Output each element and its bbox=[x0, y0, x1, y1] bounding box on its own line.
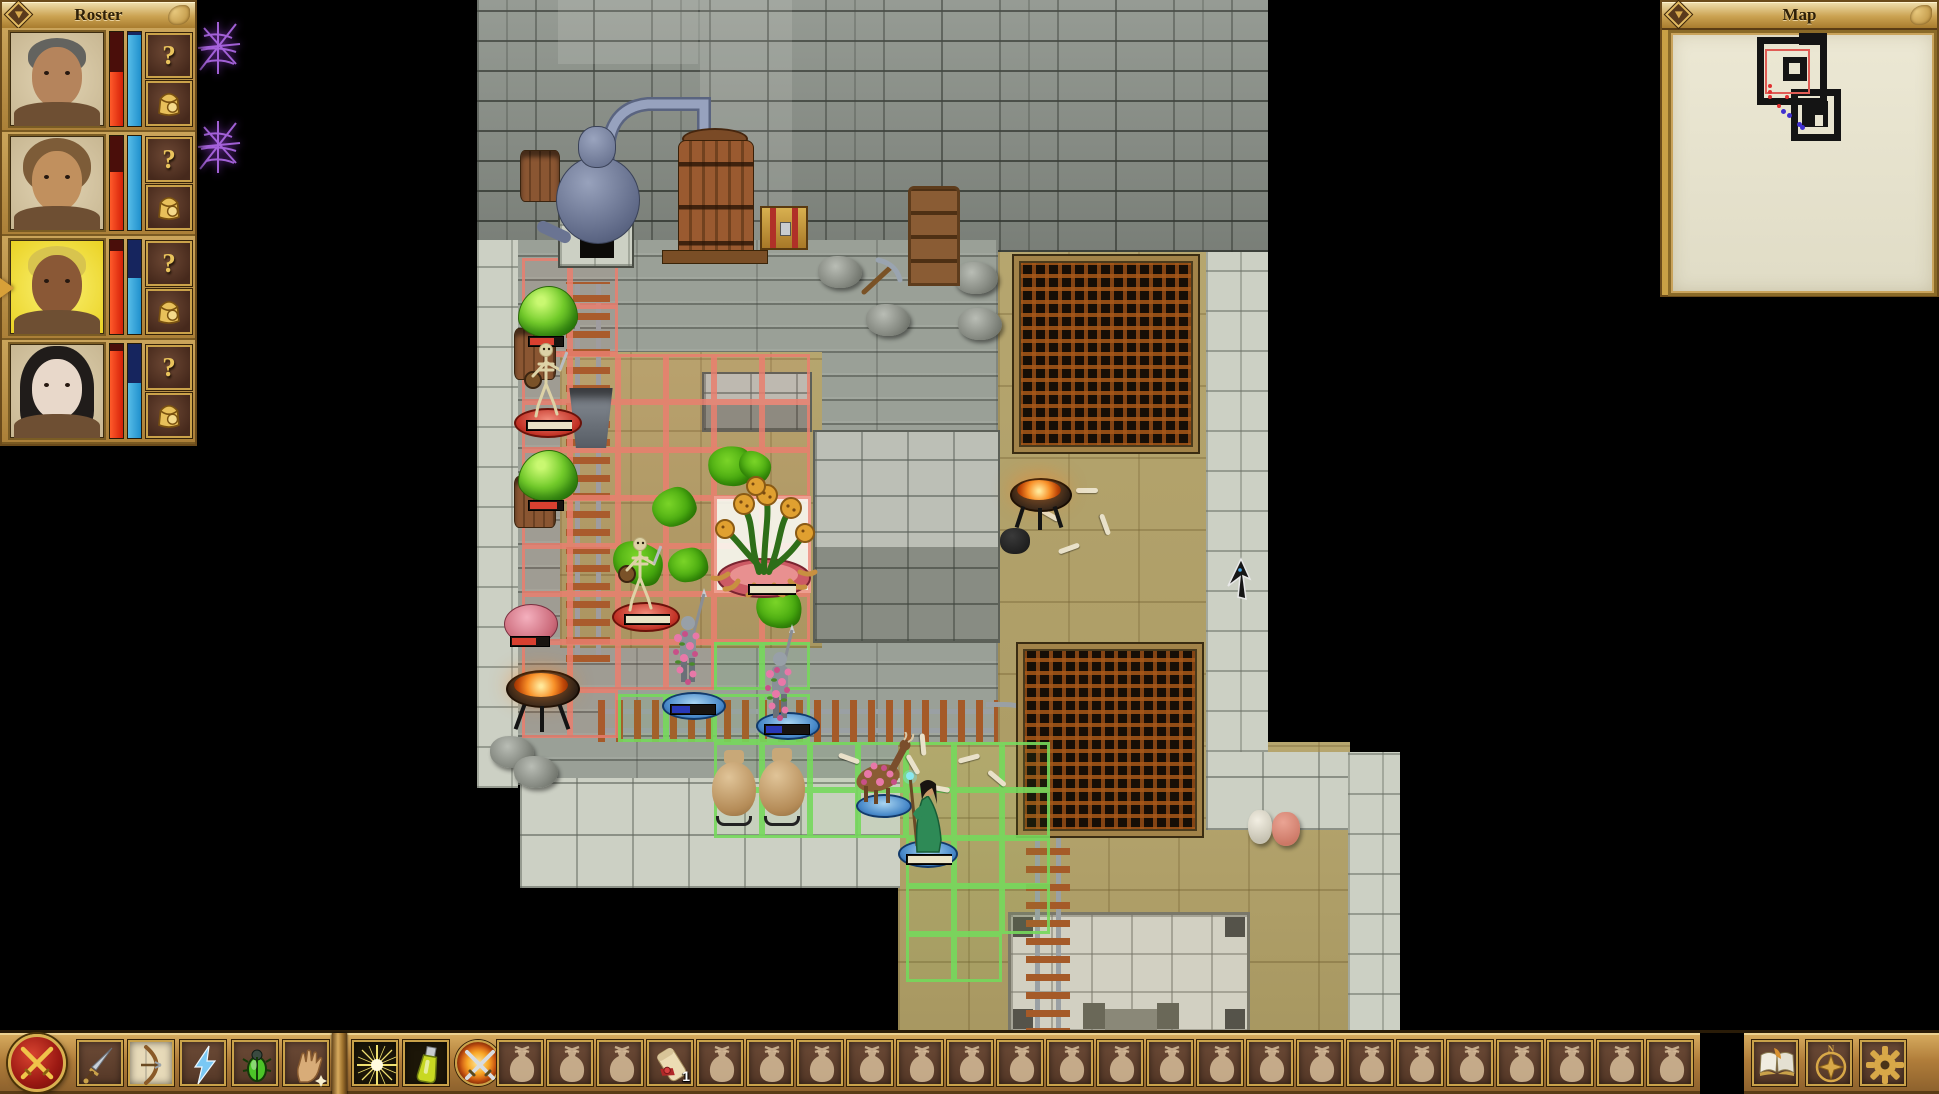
portrait[interactable] bbox=[8, 134, 106, 232]
portrait-face bbox=[32, 359, 82, 419]
active-member-arrow bbox=[0, 278, 14, 298]
bag-slot-16[interactable] bbox=[1247, 1040, 1293, 1086]
bag-slot-8[interactable] bbox=[847, 1040, 893, 1086]
compass-button[interactable]: N bbox=[1806, 1040, 1852, 1086]
bag-slot-14[interactable] bbox=[1147, 1040, 1193, 1086]
chest-strap bbox=[770, 208, 776, 248]
bag-slot-3[interactable] bbox=[597, 1040, 643, 1086]
hand-icon bbox=[285, 1042, 331, 1088]
bag-icon bbox=[1649, 1042, 1695, 1088]
minimap-viewport-rect bbox=[1765, 49, 1810, 94]
special-slot-starburst[interactable] bbox=[352, 1040, 398, 1086]
bag-icon bbox=[1449, 1042, 1495, 1088]
special-slot-potion[interactable] bbox=[403, 1040, 449, 1086]
roster-member-1[interactable]: ? bbox=[2, 28, 195, 132]
pickaxe bbox=[856, 256, 906, 298]
bag-slot-17[interactable] bbox=[1297, 1040, 1343, 1086]
plant-monster-boss[interactable] bbox=[708, 472, 820, 600]
minimap-enemy-dot bbox=[1777, 104, 1781, 108]
backpack-icon bbox=[152, 86, 186, 120]
character-info-button[interactable]: ? bbox=[146, 345, 192, 390]
bag-icon bbox=[899, 1042, 945, 1088]
bag-icon bbox=[1399, 1042, 1445, 1088]
character-info-button[interactable]: ? bbox=[146, 241, 192, 286]
bag-slot-24[interactable] bbox=[1647, 1040, 1693, 1086]
minimap-wall bbox=[1799, 33, 1827, 45]
bag-slot-5[interactable] bbox=[697, 1040, 743, 1086]
bag-icon bbox=[949, 1042, 995, 1088]
vine-covered-soldier[interactable] bbox=[660, 586, 716, 702]
bag-slot-21[interactable] bbox=[1497, 1040, 1543, 1086]
ability-slot-lightning[interactable] bbox=[180, 1040, 226, 1086]
bag-slot-20[interactable] bbox=[1447, 1040, 1493, 1086]
chest-lock bbox=[780, 222, 791, 236]
character-info-button[interactable]: ? bbox=[146, 33, 192, 78]
compass-icon: N bbox=[1808, 1042, 1854, 1088]
roster-title: Roster bbox=[2, 2, 195, 30]
bag-icon bbox=[1049, 1042, 1095, 1088]
bag-slot-22[interactable] bbox=[1547, 1040, 1593, 1086]
bag-slot-23[interactable] bbox=[1597, 1040, 1643, 1086]
lightning-icon bbox=[182, 1042, 228, 1088]
ability-slot-scarab[interactable] bbox=[232, 1040, 278, 1086]
minimap-enemy-dot bbox=[1768, 90, 1772, 94]
dagger-icon bbox=[79, 1042, 125, 1088]
minimap-enemy-dot bbox=[1768, 95, 1772, 99]
roster-panel: Roster ? ? bbox=[0, 0, 197, 446]
backpack-icon bbox=[152, 294, 186, 328]
portrait-tunic bbox=[14, 102, 100, 128]
scarab-icon bbox=[234, 1042, 280, 1088]
skeleton-enemy[interactable] bbox=[524, 340, 568, 420]
bag-slot-18[interactable] bbox=[1347, 1040, 1393, 1086]
ability-slot-bow[interactable] bbox=[128, 1040, 174, 1086]
minimap-party-dot bbox=[1800, 125, 1805, 130]
energy-bar bbox=[127, 135, 142, 231]
settings-button[interactable] bbox=[1860, 1040, 1906, 1086]
chest-strap bbox=[792, 208, 798, 248]
spiderweb-status-icon bbox=[196, 20, 242, 76]
minimap[interactable] bbox=[1668, 30, 1937, 296]
bottom-toolbar: 1 N bbox=[0, 1030, 1939, 1094]
alembic-neck bbox=[578, 126, 616, 168]
portrait-tunic bbox=[14, 414, 100, 440]
potion-icon bbox=[405, 1042, 451, 1088]
health-bar bbox=[109, 239, 124, 335]
bow-icon bbox=[130, 1042, 176, 1088]
svg-text:N: N bbox=[1828, 1044, 1835, 1054]
energy-bar bbox=[127, 239, 142, 335]
green-slime-enemy[interactable] bbox=[518, 286, 578, 338]
bag-icon bbox=[1149, 1042, 1195, 1088]
energy-bar bbox=[127, 31, 142, 127]
mouse-cursor bbox=[1224, 556, 1256, 604]
bag-icon bbox=[1299, 1042, 1345, 1088]
bag-icon bbox=[849, 1042, 895, 1088]
map-title: Map bbox=[1662, 2, 1937, 30]
pink-jug[interactable] bbox=[1272, 812, 1300, 846]
crossed-swords-icon bbox=[11, 1037, 63, 1089]
treasure-chest[interactable] bbox=[760, 206, 808, 250]
bag-slot-19[interactable] bbox=[1397, 1040, 1443, 1086]
energy-bar bbox=[127, 343, 142, 439]
brazier bbox=[504, 660, 580, 748]
bag-slot-10[interactable] bbox=[947, 1040, 993, 1086]
minimap-enemy-dot bbox=[1785, 95, 1789, 99]
iron-pot bbox=[1000, 528, 1030, 554]
bag-slot-9[interactable] bbox=[897, 1040, 943, 1086]
backpack-icon bbox=[152, 190, 186, 224]
wooden-shelf[interactable] bbox=[908, 186, 960, 286]
minimap-room bbox=[1815, 115, 1823, 126]
rock-pile bbox=[958, 308, 1002, 340]
alembic-pot bbox=[556, 156, 640, 244]
character-info-button[interactable]: ? bbox=[146, 137, 192, 182]
bag-icon bbox=[1599, 1042, 1645, 1088]
bag-icon bbox=[1499, 1042, 1545, 1088]
skeleton-enemy[interactable] bbox=[618, 534, 662, 614]
portrait[interactable] bbox=[8, 238, 106, 336]
bag-slot-4[interactable]: 1 bbox=[647, 1040, 693, 1086]
roster-member-4[interactable]: ? bbox=[2, 340, 195, 444]
bag-icon bbox=[999, 1042, 1045, 1088]
portrait-face bbox=[32, 255, 82, 315]
bag-icon bbox=[599, 1042, 645, 1088]
spiderweb-status-icon bbox=[196, 118, 242, 176]
inventory-button[interactable] bbox=[146, 81, 192, 126]
bag-slot-1[interactable] bbox=[497, 1040, 543, 1086]
health-bar bbox=[109, 135, 124, 231]
amphora[interactable] bbox=[710, 750, 758, 826]
game-viewport[interactable] bbox=[0, 0, 1939, 1091]
rock-pile bbox=[954, 262, 998, 294]
roster-member-2[interactable]: ? bbox=[2, 132, 195, 236]
journal-icon bbox=[1754, 1042, 1800, 1088]
bag-icon bbox=[749, 1042, 795, 1088]
gear-icon bbox=[1862, 1042, 1908, 1088]
inventory-button[interactable] bbox=[146, 289, 192, 334]
player-mage[interactable] bbox=[900, 770, 948, 858]
roster-member-3[interactable]: ? bbox=[2, 236, 195, 340]
bag-slot-13[interactable] bbox=[1097, 1040, 1143, 1086]
portrait-tunic bbox=[14, 310, 100, 336]
white-jug[interactable] bbox=[1248, 810, 1272, 844]
special-slot-melee-attack[interactable] bbox=[455, 1040, 501, 1086]
health-bar bbox=[109, 343, 124, 439]
bag-icon bbox=[1099, 1042, 1145, 1088]
ability-slot-touch[interactable] bbox=[283, 1040, 329, 1086]
ability-slot-dagger[interactable] bbox=[77, 1040, 123, 1086]
bag-icon bbox=[1199, 1042, 1245, 1088]
minimap-party-dot bbox=[1781, 109, 1786, 114]
health-bar bbox=[109, 31, 124, 127]
portrait[interactable] bbox=[8, 342, 106, 440]
vine-covered-soldier[interactable] bbox=[752, 622, 808, 738]
bag-slot-15[interactable] bbox=[1197, 1040, 1243, 1086]
bag-slot-11[interactable] bbox=[997, 1040, 1043, 1086]
portrait-tunic bbox=[14, 206, 100, 232]
minimap-party-dot bbox=[1787, 113, 1792, 118]
vat-cradle bbox=[662, 250, 768, 264]
bag-icon bbox=[799, 1042, 845, 1088]
portrait[interactable] bbox=[8, 30, 106, 128]
bag-icon bbox=[699, 1042, 745, 1088]
bag-icon bbox=[1349, 1042, 1395, 1088]
starburst-icon bbox=[354, 1042, 400, 1088]
bag-icon bbox=[549, 1042, 595, 1088]
bag-icon bbox=[499, 1042, 545, 1088]
wooden-vat bbox=[678, 140, 754, 258]
portrait-face bbox=[32, 47, 82, 107]
bag-slot-6[interactable] bbox=[747, 1040, 793, 1086]
backpack-icon bbox=[152, 398, 186, 432]
toolbar-gap bbox=[1700, 1033, 1744, 1094]
combat-mode-button[interactable] bbox=[8, 1034, 66, 1092]
rock-pile bbox=[866, 304, 910, 336]
green-slime-enemy[interactable] bbox=[518, 450, 578, 502]
bag-icon bbox=[1249, 1042, 1295, 1088]
bag-slot-12[interactable] bbox=[1047, 1040, 1093, 1086]
rock-pile bbox=[514, 756, 558, 788]
map-panel: Map bbox=[1660, 0, 1939, 297]
bag-icon bbox=[1549, 1042, 1595, 1088]
item-quantity: 1 bbox=[682, 1068, 690, 1084]
inventory-button[interactable] bbox=[146, 393, 192, 438]
toolbar-divider bbox=[332, 1033, 347, 1094]
minimap-enemy-dot bbox=[1768, 84, 1772, 88]
bag-slot-2[interactable] bbox=[547, 1040, 593, 1086]
amphora[interactable] bbox=[757, 748, 807, 826]
bag-slot-7[interactable] bbox=[797, 1040, 843, 1086]
inventory-button[interactable] bbox=[146, 185, 192, 230]
portrait-face bbox=[32, 151, 82, 211]
journal-button[interactable] bbox=[1752, 1040, 1798, 1086]
wooden-bucket bbox=[520, 150, 560, 202]
